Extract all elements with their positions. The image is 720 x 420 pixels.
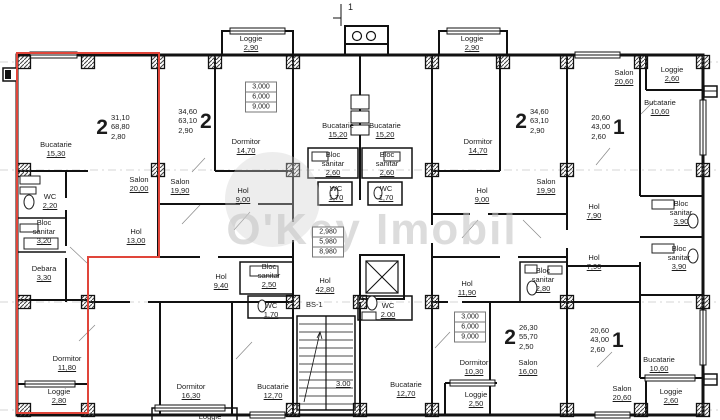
apartment-area-value: 63,10 — [178, 116, 197, 125]
room-area: 3,20 — [33, 236, 56, 245]
room-name: Loggie — [240, 34, 263, 43]
floor-plan: O'Key Imobil 1 BS-1 3.00 Bucatarie15,30S… — [0, 0, 720, 420]
room-name: Hol — [236, 186, 251, 195]
room-name: Dormitor — [460, 358, 489, 367]
room-label: Hol7,90 — [587, 253, 602, 271]
apartment-type-block: 234,6063,102,90 — [515, 107, 548, 135]
unit-table-cell: 6,000 — [455, 322, 485, 332]
room-area: 2,60 — [322, 168, 345, 177]
room-area: 42,80 — [316, 285, 335, 294]
apartment-areas: 26,3055,702,50 — [519, 323, 538, 351]
room-area: 3,90 — [670, 217, 693, 226]
room-label: Bloc sanitar3,90 — [670, 199, 693, 226]
room-name: Salon — [129, 175, 148, 184]
room-area: 2.00 — [381, 310, 396, 319]
room-label: Loggie2,80 — [48, 387, 71, 405]
apartment-room-count: 2 — [96, 117, 108, 138]
room-label: Hol42,80 — [316, 276, 335, 294]
room-area: 19,90 — [170, 186, 189, 195]
room-name: Bucatarie — [369, 121, 401, 130]
room-label: Dormitor10,30 — [460, 358, 489, 376]
room-label: Bucatarie15,30 — [40, 140, 72, 158]
apartment-areas: 20,6043,002,60 — [590, 326, 609, 354]
room-label: WC1,70 — [264, 301, 279, 319]
room-area: 2,60 — [660, 396, 683, 405]
room-area: 3,30 — [32, 273, 57, 282]
apartment-room-count: 2 — [515, 111, 527, 132]
room-name: Hol — [458, 279, 476, 288]
room-area: 2,60 — [376, 168, 399, 177]
room-label: Dormitor16,30 — [177, 382, 206, 400]
room-label: Bucatarie12,70 — [257, 382, 289, 400]
room-name: WC — [43, 192, 58, 201]
room-name: Salon — [518, 358, 537, 367]
room-label: Dormitor11,80 — [53, 354, 82, 372]
room-area: 20,00 — [129, 184, 148, 193]
room-area: 9,00 — [236, 195, 251, 204]
room-name: Salon — [170, 177, 189, 186]
room-area: 2,20 — [43, 201, 58, 210]
room-label: Loggie2,90 — [461, 34, 484, 52]
unit-table-cell: 9,000 — [246, 102, 276, 112]
room-area: 2,90 — [240, 43, 263, 52]
room-label: Salon19,90 — [170, 177, 189, 195]
room-area: 19,90 — [536, 186, 555, 195]
room-label: Hol9,00 — [475, 186, 490, 204]
room-area: 11,80 — [53, 363, 82, 372]
room-label: Hol11,90 — [458, 279, 476, 297]
apartment-type-block: 120,6043,002,60 — [591, 113, 624, 141]
room-name: Bloc sanitar — [668, 244, 691, 262]
room-name: Salon — [536, 177, 555, 186]
unit-table-cell: 8,980 — [313, 247, 343, 257]
room-area: 9,00 — [475, 195, 490, 204]
room-name: Bucatarie — [643, 355, 675, 364]
room-name: WC — [264, 301, 279, 310]
apartment-type-block: 120,6043,002,60 — [590, 326, 623, 354]
room-area: 15,30 — [40, 149, 72, 158]
room-label: WC2,20 — [43, 192, 58, 210]
room-area: 10,30 — [460, 367, 489, 376]
room-label: Bloc sanitar3,90 — [668, 244, 691, 271]
labels-layer: 1 BS-1 3.00 Bucatarie15,30Salon20,00WC2,… — [0, 0, 720, 420]
room-name: Hol — [214, 272, 229, 281]
room-area: 2,50 — [465, 399, 488, 408]
room-name: Hol — [127, 227, 146, 236]
room-area: 14,70 — [232, 146, 261, 155]
room-name: WC — [329, 184, 344, 193]
apartment-areas: 31,1068,802,80 — [111, 113, 130, 141]
apartment-area-value: 2,60 — [590, 345, 609, 354]
room-area: 14,70 — [464, 146, 493, 155]
apartment-areas: 20,6043,002,60 — [591, 113, 610, 141]
room-label: WC1,70 — [379, 184, 394, 202]
room-name: Hol — [587, 202, 602, 211]
room-label: Bucatarie12,70 — [390, 380, 422, 398]
unit-table: 3,0006,0009,000 — [454, 312, 486, 343]
room-label: Salon19,90 — [536, 177, 555, 195]
room-name: Bucatarie — [322, 121, 354, 130]
room-name: Loggie — [199, 412, 222, 420]
room-area: 2,60 — [661, 74, 684, 83]
room-label: WC2.00 — [381, 301, 396, 319]
room-name: Loggie — [461, 34, 484, 43]
room-name: Loggie — [465, 390, 488, 399]
unit-table-cell: 9,000 — [455, 332, 485, 342]
room-area: 3,90 — [668, 262, 691, 271]
room-label: Bloc sanitar2,60 — [322, 150, 345, 177]
room-label: Salon16,00 — [518, 358, 537, 376]
apartment-area-value: 55,70 — [519, 332, 538, 341]
room-name: Loggie — [660, 387, 683, 396]
apartment-area-value: 2,90 — [530, 126, 549, 135]
room-label: Hol9,00 — [236, 186, 251, 204]
apartment-area-value: 43,00 — [591, 122, 610, 131]
room-area: 16,30 — [177, 391, 206, 400]
room-name: Bloc sanitar — [532, 266, 555, 284]
apartment-area-value: 2,90 — [178, 126, 197, 135]
room-area: 12,70 — [257, 391, 289, 400]
unit-table: 3,0006,0009,000 — [245, 82, 277, 113]
room-area: 7,90 — [587, 262, 602, 271]
room-area: 11,90 — [458, 288, 476, 297]
room-area: 15,20 — [322, 130, 354, 139]
room-name: Salon — [614, 68, 633, 77]
apartment-room-count: 2 — [504, 327, 516, 348]
room-name: Bloc sanitar — [670, 199, 693, 217]
apartment-area-value: 68,80 — [111, 122, 130, 131]
room-name: Bucatarie — [40, 140, 72, 149]
room-label: Loggie2,50 — [465, 390, 488, 408]
apartment-areas: 34,6063,102,90 — [178, 107, 197, 135]
room-label: Dormitor14,70 — [232, 137, 261, 155]
apartment-area-value: 31,10 — [111, 113, 130, 122]
room-name: Bloc sanitar — [322, 150, 345, 168]
apartment-area-value: 20,60 — [591, 113, 610, 122]
room-label: Loggie2,90 — [240, 34, 263, 52]
room-name: Bucatarie — [644, 98, 676, 107]
room-area: 9,40 — [214, 281, 229, 290]
room-area: 1,70 — [379, 193, 394, 202]
room-name: Dormitor — [232, 137, 261, 146]
room-name: WC — [379, 184, 394, 193]
room-name: Dormitor — [53, 354, 82, 363]
room-label: Bloc sanitar2,80 — [532, 266, 555, 293]
stairwell-label: BS-1 — [306, 300, 323, 309]
room-area: 2,90 — [461, 43, 484, 52]
room-label: Bucatarie15,20 — [322, 121, 354, 139]
room-name: Debara — [32, 264, 57, 273]
room-name: Bloc sanitar — [376, 150, 399, 168]
room-label: Loggie2,60 — [661, 65, 684, 83]
room-name: Dormitor — [177, 382, 206, 391]
apartment-area-value: 43,00 — [590, 335, 609, 344]
stairs-landing-value: 3.00 — [336, 379, 351, 388]
room-name: Hol — [587, 253, 602, 262]
room-label: Debara3,30 — [32, 264, 57, 282]
room-area: 7,90 — [587, 211, 602, 220]
apartment-area-value: 2,80 — [111, 132, 130, 141]
apartment-areas: 34,6063,102,90 — [530, 107, 549, 135]
apartment-area-value: 20,60 — [590, 326, 609, 335]
room-area: 20,60 — [614, 77, 633, 86]
room-name: Bloc sanitar — [33, 218, 56, 236]
room-label: Loggie — [199, 412, 222, 420]
room-area: 20,60 — [612, 393, 631, 402]
room-label: Salon20,60 — [612, 384, 631, 402]
room-label: Bucatarie15,20 — [369, 121, 401, 139]
unit-table-cell: 5,980 — [313, 237, 343, 247]
room-area: 12,70 — [390, 389, 422, 398]
room-area: 1,70 — [264, 310, 279, 319]
room-label: Hol9,40 — [214, 272, 229, 290]
room-label: Loggie2,60 — [660, 387, 683, 405]
room-label: WC1,70 — [329, 184, 344, 202]
room-name: Dormitor — [464, 137, 493, 146]
room-label: Bloc sanitar2,50 — [258, 262, 281, 289]
section-mark: 1 — [348, 2, 353, 12]
room-label: Bucatarie10,60 — [644, 98, 676, 116]
unit-table: 2,9805,9808,980 — [312, 227, 344, 258]
room-area: 15,20 — [369, 130, 401, 139]
apartment-area-value: 2,60 — [591, 132, 610, 141]
apartment-room-count: 1 — [612, 330, 624, 351]
room-label: Salon20,60 — [614, 68, 633, 86]
room-area: 2,80 — [532, 284, 555, 293]
room-name: Hol — [316, 276, 335, 285]
room-area: 2,80 — [48, 396, 71, 405]
room-label: Dormitor14,70 — [464, 137, 493, 155]
room-label: Hol7,90 — [587, 202, 602, 220]
room-name: WC — [381, 301, 396, 310]
room-area: 10,60 — [644, 107, 676, 116]
apartment-type-block: 234,6063,102,90 — [178, 107, 211, 135]
room-area: 1,70 — [329, 193, 344, 202]
room-name: Loggie — [661, 65, 684, 74]
room-area: 2,50 — [258, 280, 281, 289]
room-label: Bloc sanitar2,60 — [376, 150, 399, 177]
apartment-type-block: 231,1068,802,80 — [96, 113, 129, 141]
apartment-area-value: 34,60 — [530, 107, 549, 116]
room-area: 13,00 — [127, 236, 146, 245]
apartment-area-value: 34,60 — [178, 107, 197, 116]
room-name: Loggie — [48, 387, 71, 396]
room-name: Bloc sanitar — [258, 262, 281, 280]
apartment-room-count: 2 — [200, 111, 212, 132]
unit-table-cell: 6,000 — [246, 92, 276, 102]
room-label: Salon20,00 — [129, 175, 148, 193]
unit-table-cell: 3,000 — [455, 313, 485, 322]
room-label: Bloc sanitar3,20 — [33, 218, 56, 245]
room-area: 10,60 — [643, 364, 675, 373]
apartment-area-value: 2,50 — [519, 342, 538, 351]
room-name: Bucatarie — [390, 380, 422, 389]
apartment-area-value: 26,30 — [519, 323, 538, 332]
apartment-area-value: 63,10 — [530, 116, 549, 125]
room-name: Bucatarie — [257, 382, 289, 391]
room-name: Salon — [612, 384, 631, 393]
room-label: Hol13,00 — [127, 227, 146, 245]
apartment-room-count: 1 — [613, 117, 625, 138]
unit-table-cell: 2,980 — [313, 228, 343, 237]
room-area: 16,00 — [518, 367, 537, 376]
apartment-type-block: 226,3055,702,50 — [504, 323, 537, 351]
unit-table-cell: 3,000 — [246, 83, 276, 92]
room-name: Hol — [475, 186, 490, 195]
room-label: Bucatarie10,60 — [643, 355, 675, 373]
